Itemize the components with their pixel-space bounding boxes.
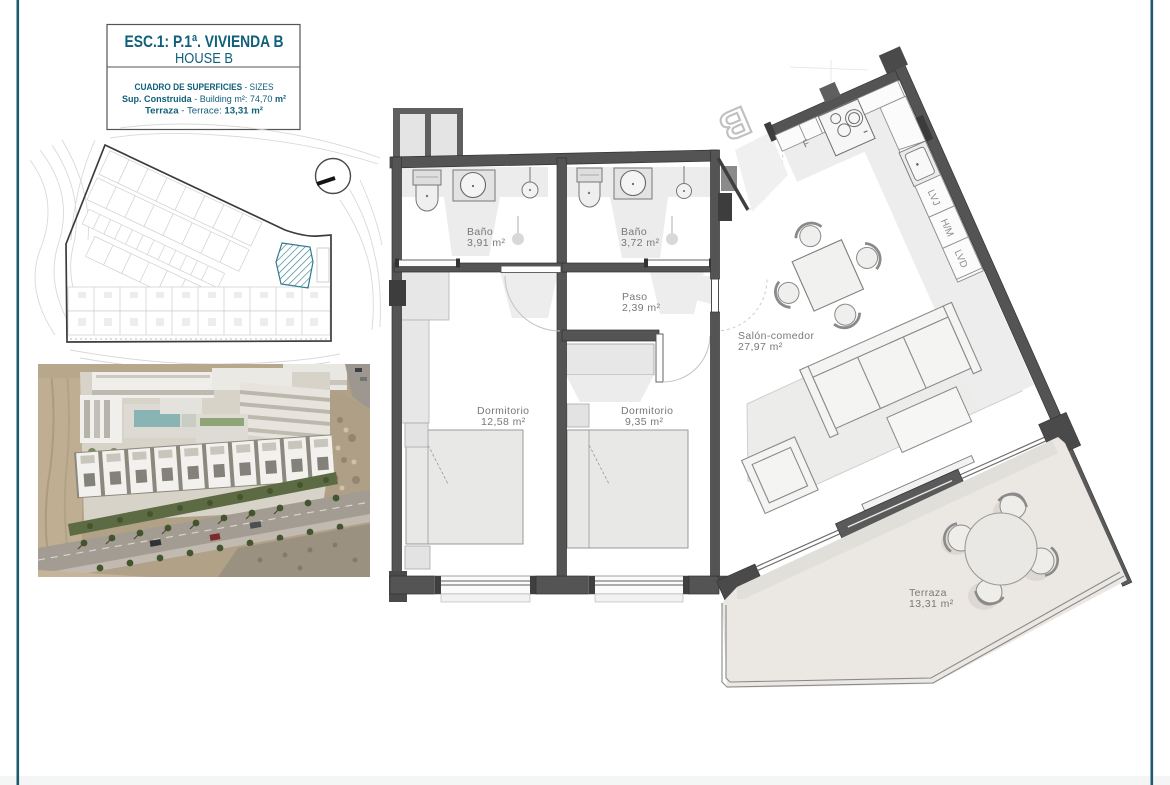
svg-text:Terraza - Terrace: 13,31 m²: Terraza - Terrace: 13,31 m² — [145, 106, 263, 117]
svg-text:HOUSE B: HOUSE B — [175, 51, 233, 67]
svg-text:3,72 m²: 3,72 m² — [621, 237, 659, 249]
svg-text:Sup. Construida - Building m²:: Sup. Construida - Building m²: 74,70 m² — [122, 94, 286, 105]
svg-text:2,39 m²: 2,39 m² — [622, 302, 660, 314]
svg-text:3,91 m²: 3,91 m² — [467, 237, 505, 249]
svg-text:9,35 m²: 9,35 m² — [625, 416, 663, 428]
svg-text:ESC.1: P.1ª. VIVIENDA B: ESC.1: P.1ª. VIVIENDA B — [125, 32, 284, 51]
svg-text:27,97 m²: 27,97 m² — [738, 341, 783, 353]
svg-text:13,31 m²: 13,31 m² — [909, 598, 954, 610]
svg-text:CUADRO DE SUPERFICIES - SIZES: CUADRO DE SUPERFICIES - SIZES — [135, 82, 274, 93]
svg-text:12,58 m²: 12,58 m² — [481, 416, 526, 428]
